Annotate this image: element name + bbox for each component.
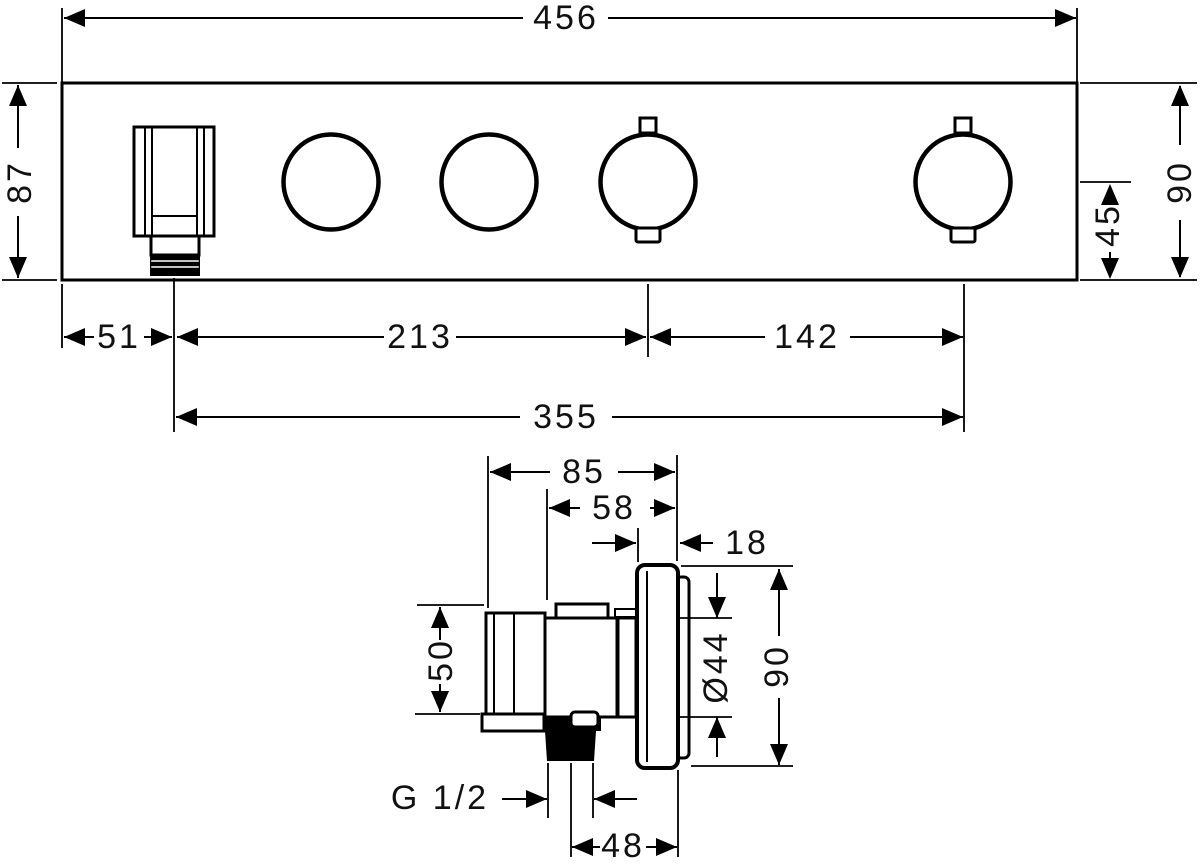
holder-neck: [151, 236, 199, 255]
dim-label-center-offset: 45: [1089, 203, 1127, 247]
hand-shower-holder-front: [134, 127, 214, 276]
drawing-page: 456 87 90 45 51 213 142 355 85 58 18 50 …: [0, 0, 1200, 867]
dim-label-dia44: Ø44: [697, 630, 735, 703]
body-plate-connector: [615, 609, 638, 617]
dimension-labels: 456 87 90 45 51 213 142 355 85 58 18 50 …: [1, 0, 1199, 865]
dim-label-height: 87: [1, 160, 39, 204]
select-button-2: [442, 135, 537, 230]
valve-body-tab: [556, 604, 608, 618]
front-view: [62, 83, 1077, 280]
dim-label-height-right: 90: [1161, 160, 1199, 204]
dim-label-g12: G 1/2: [391, 779, 489, 817]
dim-label-48: 48: [601, 827, 645, 865]
dim-label-213: 213: [387, 318, 453, 356]
dim-label-58: 58: [592, 489, 636, 527]
dim-label-142: 142: [774, 318, 840, 356]
dim-label-90-lower: 90: [758, 644, 796, 688]
g12-thread-side: [545, 731, 596, 761]
dim-label-85: 85: [562, 453, 606, 491]
outlet-notch: [571, 712, 598, 727]
thermostat-knob-2: [916, 135, 1011, 230]
dim-label-51: 51: [97, 318, 141, 356]
knob-grip-tabs: [636, 118, 975, 242]
thermostat-knob-1: [601, 135, 696, 230]
dim-label-50: 50: [422, 638, 460, 682]
technical-drawing: 456 87 90 45 51 213 142 355 85 58 18 50 …: [0, 0, 1200, 867]
holder-thread: [150, 255, 200, 276]
escutcheon-plate: [637, 565, 678, 768]
knob-side-profile: [618, 618, 636, 717]
dim-label-width: 456: [533, 0, 599, 37]
valve-body: [545, 618, 617, 717]
side-view: [482, 565, 689, 768]
dim-label-355: 355: [533, 398, 599, 436]
select-button-1: [284, 135, 379, 230]
hose-outlet-elbow: [482, 714, 544, 731]
dim-label-18: 18: [725, 524, 769, 562]
